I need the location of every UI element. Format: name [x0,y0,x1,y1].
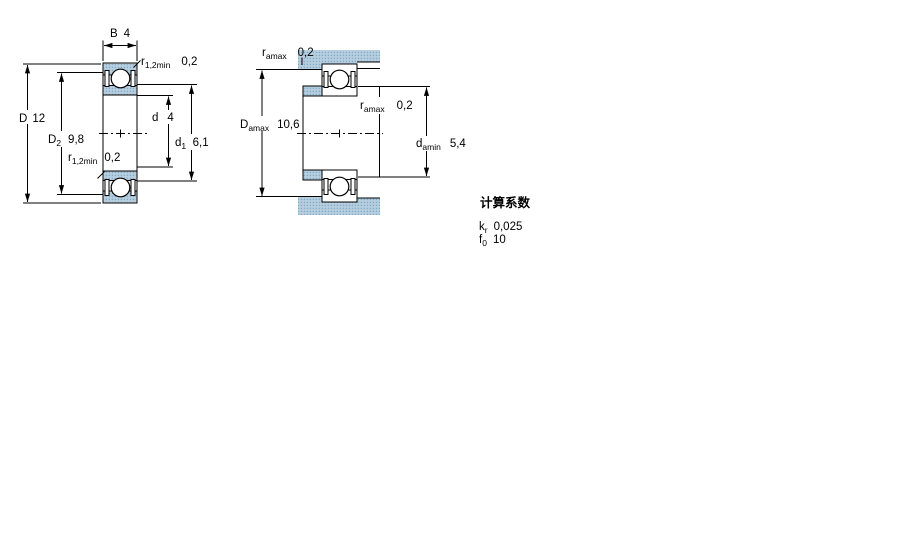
shield-left-top [105,71,109,87]
bearing-dimensions-figure: B4 r1,2min0,2 D12 D29,8 d4 d16,1 r1,2min… [0,0,900,560]
shaft-shoulder-bottom [303,170,322,180]
dim-label-r12min-top: r1,2min0,2 [141,56,197,70]
shaft-shoulder-top [303,86,322,96]
dim-label-r12min-bottom: r1,2min0,2 [68,152,120,166]
ball-top [111,69,130,88]
left-cross-section-view: B4 r1,2min0,2 D12 D29,8 d4 d16,1 r1,2min… [17,28,211,203]
cage-right-top [351,72,355,88]
dim-label-ramax-top: ramax0,2 [262,47,314,61]
dim-label-outside-diameter-D: D12 [19,113,45,125]
cage-right-bottom [351,179,355,195]
shield-right-top [131,71,135,87]
factors-heading: 计算系数 [480,195,531,210]
cage-left-top [324,72,328,88]
dim-label-ramax-mid: ramax0,2 [360,100,413,114]
ball-bottom [111,178,130,197]
ball-top [330,70,349,89]
shield-left-bottom [105,180,109,196]
factor-kr: kr0,025 [479,221,522,235]
cage-left-bottom [324,179,328,195]
right-mounted-view: ramax0,2 Damax10,6 ramax0,2 damin5,4 [238,47,466,215]
calculation-factors-block: 计算系数 kr0,025 f010 [479,195,531,248]
shield-right-bottom [131,180,135,196]
technical-drawing-canvas: B4 r1,2min0,2 D12 D29,8 d4 d16,1 r1,2min… [0,0,900,560]
dim-label-width-B: B4 [110,28,131,40]
ball-bottom [330,177,349,196]
dim-label-d1: d16,1 [175,137,209,151]
factor-f0: f010 [479,234,506,248]
